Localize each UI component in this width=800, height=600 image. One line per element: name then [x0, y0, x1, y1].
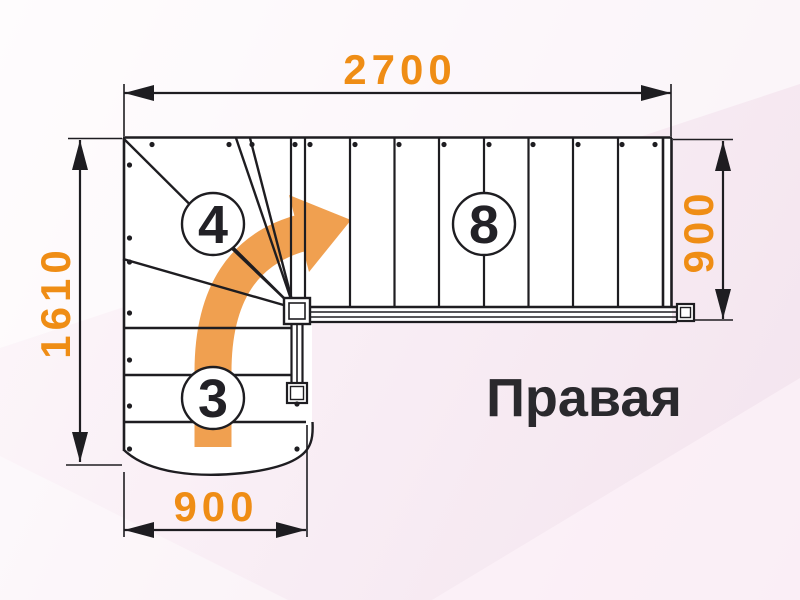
- dim-bottom-label: 900: [173, 483, 258, 530]
- lower-rail-post: [287, 383, 307, 403]
- arrowhead-up-icon: [715, 141, 731, 171]
- dim-right-label: 900: [675, 188, 722, 273]
- dim-left-label: 1610: [32, 245, 79, 358]
- orientation-title: Правая: [486, 368, 682, 428]
- arrowhead-left-icon: [124, 522, 154, 538]
- arrowhead-up-icon: [72, 140, 88, 170]
- step-count-winder-label: 4: [198, 195, 228, 255]
- arrowhead-down-icon: [715, 289, 731, 319]
- dimension-top: 2700: [124, 46, 671, 136]
- dimension-left: 1610: [32, 139, 122, 466]
- dimension-right: 900: [673, 140, 733, 321]
- dim-top-label: 2700: [343, 46, 456, 93]
- step-count-lower-label: 3: [198, 369, 228, 429]
- arrowhead-right-icon: [276, 522, 306, 538]
- step-count-upper-label: 8: [469, 195, 499, 255]
- arrowhead-right-icon: [641, 85, 671, 101]
- step-count-upper-flight: 8: [453, 193, 515, 255]
- step-count-lower-flight: 3: [182, 367, 244, 429]
- rail-end-post: [677, 304, 694, 321]
- step-count-winder: 4: [182, 193, 244, 255]
- arrowhead-left-icon: [124, 85, 154, 101]
- staircase-plan-diagram: 2700 1610 900 900: [0, 0, 800, 600]
- newel-post: [284, 298, 310, 324]
- arrowhead-down-icon: [72, 432, 88, 462]
- stair-plan-canvas: 2700 1610 900 900: [0, 0, 800, 600]
